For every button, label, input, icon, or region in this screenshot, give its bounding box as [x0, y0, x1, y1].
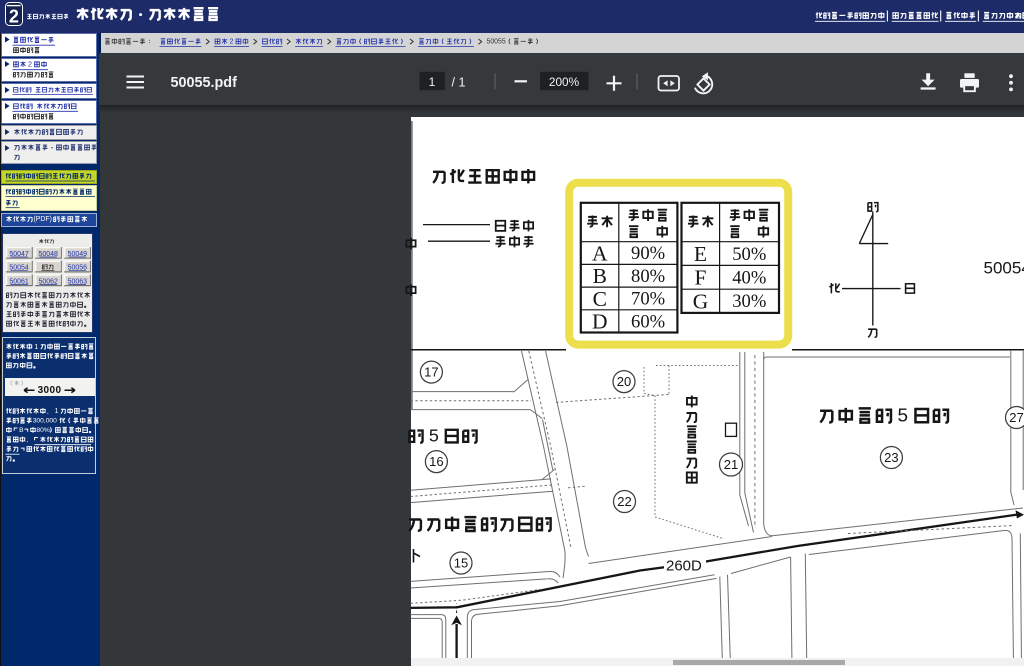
svg-text:F: F	[695, 266, 707, 290]
svg-text:27: 27	[1009, 410, 1023, 425]
svg-text:50%: 50%	[732, 244, 766, 265]
svg-text:15: 15	[454, 556, 468, 571]
svg-text:2: 2	[230, 38, 234, 46]
svg-text:/ 1: / 1	[452, 76, 466, 90]
svg-text:260D: 260D	[666, 558, 702, 575]
svg-text:5: 5	[898, 406, 909, 427]
svg-text:20: 20	[617, 374, 631, 389]
svg-text:1: 1	[429, 75, 436, 89]
svg-text:2: 2	[28, 61, 32, 69]
svg-text:300,000: 300,000	[33, 418, 57, 425]
svg-text:D: D	[592, 310, 608, 334]
svg-text:50055.pdf: 50055.pdf	[171, 75, 238, 91]
svg-text:80%: 80%	[36, 427, 49, 434]
svg-text:B: B	[19, 427, 24, 434]
svg-text:A: A	[592, 241, 608, 265]
svg-text:5: 5	[429, 426, 439, 446]
svg-text:200%: 200%	[549, 75, 580, 89]
svg-text:1: 1	[34, 344, 38, 351]
svg-text:(PDF): (PDF)	[34, 216, 52, 223]
svg-text:80%: 80%	[631, 266, 665, 287]
svg-text:50055: 50055	[487, 39, 506, 46]
svg-text:50054: 50054	[984, 259, 1024, 278]
svg-text:70%: 70%	[631, 289, 665, 310]
svg-text:22: 22	[617, 494, 631, 509]
svg-text:B: B	[593, 264, 607, 288]
svg-text:30%: 30%	[732, 291, 766, 312]
svg-text:1: 1	[55, 408, 59, 415]
svg-text:21: 21	[724, 457, 738, 472]
svg-text:C: C	[593, 287, 607, 311]
svg-text:E: E	[694, 242, 707, 266]
svg-text:23: 23	[884, 450, 898, 465]
svg-text:2: 2	[9, 6, 19, 26]
svg-text:60%: 60%	[631, 311, 665, 332]
svg-text:17: 17	[424, 365, 438, 380]
svg-text:3000: 3000	[38, 385, 62, 396]
svg-text:90%: 90%	[631, 243, 665, 264]
svg-text:40%: 40%	[732, 268, 766, 289]
svg-text:G: G	[693, 289, 709, 313]
svg-text:16: 16	[429, 454, 443, 469]
